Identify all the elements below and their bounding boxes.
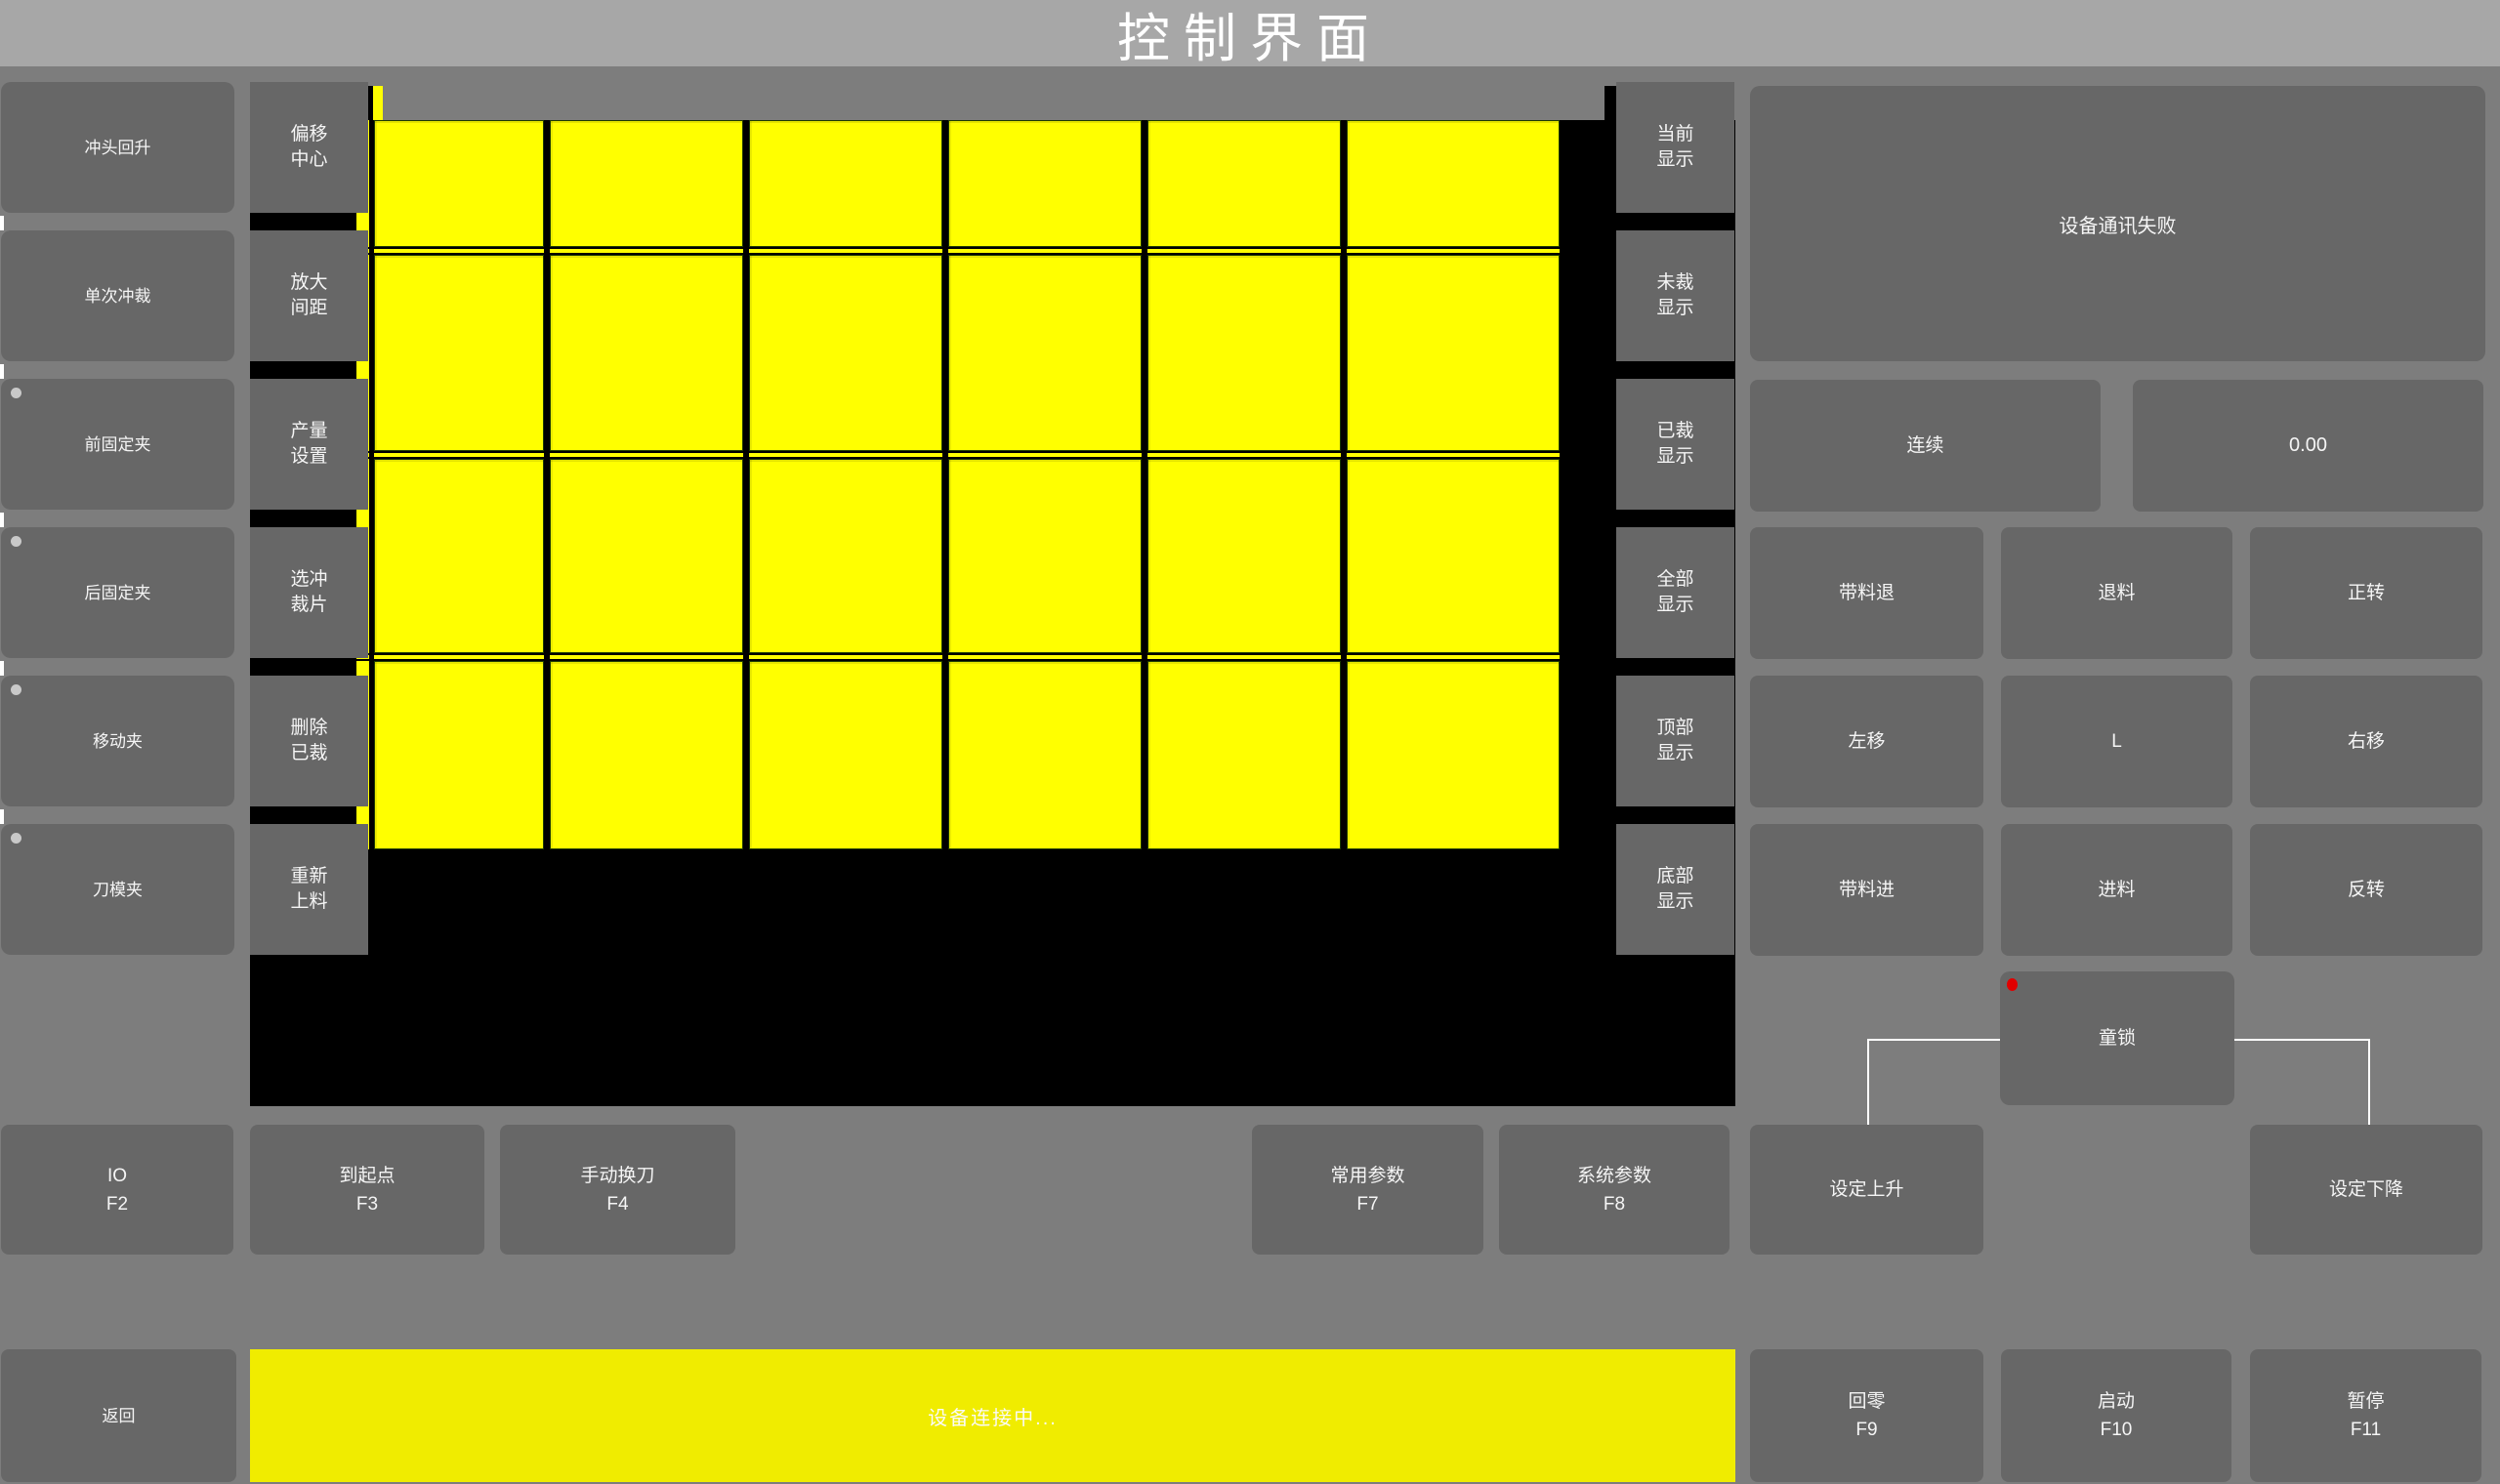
display-button-line2: 显示 [1656, 741, 1693, 766]
display-button-line2: 显示 [1656, 444, 1693, 470]
comm-status-text: 设备通讯失败 [2060, 210, 2177, 238]
edge-tick [0, 364, 4, 379]
jog-button-右移[interactable]: 右移 [2250, 676, 2482, 807]
jog-button-label: 进料 [2098, 877, 2135, 903]
child-lock-indicator-icon [2007, 978, 2018, 991]
display-button-line1: 已裁 [1656, 419, 1693, 444]
nest-piece[interactable] [749, 661, 942, 849]
display-button-line1: 未裁 [1656, 270, 1693, 296]
display-button-line2: 显示 [1656, 593, 1693, 618]
bottom-key-label: 启动 [2098, 1387, 2135, 1416]
function-button-label: 系统参数 [1577, 1162, 1651, 1190]
nest-piece[interactable] [1347, 661, 1560, 849]
bottom-key-label: 暂停 [2347, 1387, 2384, 1416]
nest-spacer-strip [1147, 453, 1341, 457]
nest-spacer-strip [550, 655, 743, 659]
tool-button-重新上料[interactable]: 重新上料 [250, 824, 368, 955]
nest-spacer-strip [948, 655, 1142, 659]
left-button-刀模夹[interactable]: 刀模夹 [1, 824, 234, 955]
jog-button-label: 退料 [2098, 580, 2135, 606]
display-button-顶部显示[interactable]: 顶部显示 [1616, 676, 1734, 806]
tool-button-line1: 选冲 [290, 567, 327, 593]
jog-button-进料[interactable]: 进料 [2001, 824, 2232, 956]
jog-button-label: L [2111, 728, 2122, 755]
tool-button-line1: 放大 [290, 270, 327, 296]
nest-spacer-strip [374, 655, 544, 659]
bottom-key-暂停[interactable]: 暂停F11 [2250, 1349, 2481, 1482]
jog-button-反转[interactable]: 反转 [2250, 824, 2482, 956]
back-button[interactable]: 返回 [1, 1349, 236, 1482]
bottom-key-fkey: F9 [1855, 1416, 1877, 1444]
nest-piece[interactable] [948, 255, 1142, 451]
function-button-设定下降[interactable]: 设定下降 [2250, 1125, 2482, 1255]
function-button-到起点[interactable]: 到起点F3 [250, 1125, 484, 1255]
left-button-label: 刀模夹 [93, 877, 143, 903]
nest-piece[interactable] [1147, 661, 1341, 849]
tool-button-line1: 删除 [290, 716, 327, 741]
tool-button-line1: 重新 [290, 864, 327, 889]
nest-spacer-strip [749, 655, 942, 659]
tool-button-line1: 产量 [290, 419, 327, 444]
display-button-line1: 全部 [1656, 567, 1693, 593]
bottom-key-fkey: F10 [2101, 1416, 2133, 1444]
child-lock-label: 童锁 [2099, 1025, 2136, 1051]
left-button-label: 单次冲裁 [85, 283, 151, 309]
nest-spacer-strip [1347, 655, 1560, 659]
function-button-常用参数[interactable]: 常用参数F7 [1252, 1125, 1483, 1255]
jog-button-label: 反转 [2348, 877, 2385, 903]
nest-spacer-strip [948, 453, 1142, 457]
display-button-line1: 顶部 [1656, 716, 1693, 741]
tool-button-偏移中心[interactable]: 偏移中心 [250, 82, 368, 213]
left-button-label: 后固定夹 [85, 580, 151, 606]
tool-button-删除已裁[interactable]: 删除已裁 [250, 676, 368, 806]
tool-button-line2: 已裁 [290, 741, 327, 766]
bottom-key-启动[interactable]: 启动F10 [2001, 1349, 2231, 1482]
nest-piece[interactable] [1347, 120, 1560, 247]
left-button-label: 前固定夹 [85, 432, 151, 458]
jog-button-退料[interactable]: 退料 [2001, 527, 2232, 659]
tool-button-line1: 偏移 [290, 122, 327, 147]
wire-right-horizontal [2234, 1039, 2370, 1041]
nest-spacer-strip [948, 249, 1142, 253]
nest-spacer-strip [1347, 453, 1560, 457]
display-button-line2: 显示 [1656, 889, 1693, 915]
tool-button-line2: 设置 [290, 444, 327, 470]
function-button-key: F8 [1604, 1190, 1625, 1218]
edge-tick [0, 216, 4, 230]
nest-piece[interactable] [550, 459, 743, 653]
nest-piece[interactable] [749, 459, 942, 653]
jog-button-带料退[interactable]: 带料退 [1750, 527, 1983, 659]
nest-spacer-strip [374, 249, 544, 253]
edge-tick [0, 809, 4, 824]
connection-status-text: 设备连接中... [928, 1402, 1058, 1430]
clipped-piece-gap [368, 86, 373, 120]
jog-button-label: 左移 [1848, 728, 1885, 755]
control-screen: 控制界面 设备通讯失败 连续 0.00 童锁 返回 设备连接中... 冲头回升单… [0, 0, 2500, 1484]
value-display-text: 0.00 [2289, 433, 2327, 459]
nest-spacer-strip [374, 453, 544, 457]
back-button-label: 返回 [103, 1403, 136, 1429]
left-button-前固定夹[interactable]: 前固定夹 [1, 379, 234, 510]
wire-left-horizontal [1867, 1039, 2001, 1041]
nest-spacer-strip [749, 249, 942, 253]
tool-button-选冲裁片[interactable]: 选冲裁片 [250, 527, 368, 658]
display-button-全部显示[interactable]: 全部显示 [1616, 527, 1734, 658]
nest-piece[interactable] [550, 255, 743, 451]
jog-button-label: 正转 [2348, 580, 2385, 606]
function-button-设定上升[interactable]: 设定上升 [1750, 1125, 1983, 1255]
display-button-已裁显示[interactable]: 已裁显示 [1616, 379, 1734, 510]
nest-spacer-strip [550, 453, 743, 457]
comm-status-panel: 设备通讯失败 [1750, 86, 2485, 361]
function-button-label: 常用参数 [1330, 1162, 1404, 1190]
connection-status-bar: 设备连接中... [250, 1349, 1735, 1482]
nest-piece[interactable] [1347, 255, 1560, 451]
tool-button-line2: 上料 [290, 889, 327, 915]
nest-piece[interactable] [374, 661, 544, 849]
wire-left-vertical [1867, 1039, 1869, 1125]
function-button-label: 设定上升 [1829, 1175, 1903, 1204]
function-button-IO[interactable]: IOF2 [1, 1125, 233, 1255]
tool-button-line2: 间距 [290, 296, 327, 321]
clamp-indicator-icon [11, 833, 21, 844]
mode-button[interactable]: 连续 [1750, 380, 2101, 512]
edge-tick [0, 661, 4, 676]
value-display: 0.00 [2133, 380, 2483, 512]
nest-piece[interactable] [1147, 459, 1341, 653]
display-button-line1: 当前 [1656, 122, 1693, 147]
wire-right-vertical [2368, 1039, 2370, 1125]
nest-spacer-strip [1147, 249, 1341, 253]
child-lock-button[interactable]: 童锁 [2000, 971, 2234, 1105]
function-button-key: F7 [1356, 1190, 1378, 1218]
nest-piece[interactable] [374, 255, 544, 451]
nest-spacer-strip [550, 249, 743, 253]
function-button-key: F4 [606, 1190, 628, 1218]
function-button-手动换刀[interactable]: 手动换刀F4 [500, 1125, 735, 1255]
clamp-indicator-icon [11, 684, 21, 695]
function-button-label: IO [107, 1162, 127, 1190]
display-button-line1: 底部 [1656, 864, 1693, 889]
nest-piece[interactable] [550, 120, 743, 247]
left-button-单次冲裁[interactable]: 单次冲裁 [1, 230, 234, 361]
nest-piece[interactable] [1147, 120, 1341, 247]
nest-piece[interactable] [749, 255, 942, 451]
nest-spacer-strip [1147, 655, 1341, 659]
jog-button-带料进[interactable]: 带料进 [1750, 824, 1983, 956]
page-title: 控制界面 [1117, 0, 1383, 72]
tool-button-放大间距[interactable]: 放大间距 [250, 230, 368, 361]
nest-piece[interactable] [948, 120, 1142, 247]
function-button-key: F2 [106, 1190, 128, 1218]
tool-button-line2: 中心 [290, 147, 327, 173]
nest-piece[interactable] [948, 459, 1142, 653]
display-button-line2: 显示 [1656, 147, 1693, 173]
left-button-冲头回升[interactable]: 冲头回升 [1, 82, 234, 213]
nest-piece[interactable] [749, 120, 942, 247]
function-button-label: 手动换刀 [580, 1162, 654, 1190]
left-button-移动夹[interactable]: 移动夹 [1, 676, 234, 806]
nest-piece[interactable] [948, 661, 1142, 849]
tool-button-line2: 裁片 [290, 593, 327, 618]
bottom-key-回零[interactable]: 回零F9 [1750, 1349, 1983, 1482]
clamp-indicator-icon [11, 536, 21, 547]
nest-piece[interactable] [1147, 255, 1341, 451]
nest-piece[interactable] [1347, 459, 1560, 653]
left-button-label: 冲头回升 [85, 135, 151, 161]
bottom-key-fkey: F11 [2351, 1416, 2381, 1444]
bottom-key-label: 回零 [1848, 1387, 1885, 1416]
edge-tick [0, 513, 4, 527]
clamp-indicator-icon [11, 388, 21, 398]
title-bar: 控制界面 [0, 0, 2500, 66]
jog-button-label: 带料进 [1839, 877, 1895, 903]
display-button-底部显示[interactable]: 底部显示 [1616, 824, 1734, 955]
nest-piece[interactable] [374, 120, 544, 247]
function-button-label: 设定下降 [2329, 1175, 2403, 1204]
display-button-当前显示[interactable]: 当前显示 [1616, 82, 1734, 213]
display-button-未裁显示[interactable]: 未裁显示 [1616, 230, 1734, 361]
jog-button-label: 带料退 [1839, 580, 1895, 606]
nest-piece[interactable] [550, 661, 743, 849]
jog-button-label: 右移 [2348, 728, 2385, 755]
left-button-后固定夹[interactable]: 后固定夹 [1, 527, 234, 658]
tool-button-产量设置[interactable]: 产量设置 [250, 379, 368, 510]
jog-button-左移[interactable]: 左移 [1750, 676, 1983, 807]
nest-spacer-strip [749, 453, 942, 457]
jog-button-L[interactable]: L [2001, 676, 2232, 807]
jog-button-正转[interactable]: 正转 [2250, 527, 2482, 659]
function-button-key: F3 [356, 1190, 378, 1218]
left-button-label: 移动夹 [93, 728, 143, 755]
nest-piece[interactable] [374, 459, 544, 653]
function-button-label: 到起点 [339, 1162, 395, 1190]
display-button-line2: 显示 [1656, 296, 1693, 321]
nest-spacer-strip [1347, 249, 1560, 253]
function-button-系统参数[interactable]: 系统参数F8 [1499, 1125, 1729, 1255]
mode-button-label: 连续 [1906, 433, 1943, 459]
